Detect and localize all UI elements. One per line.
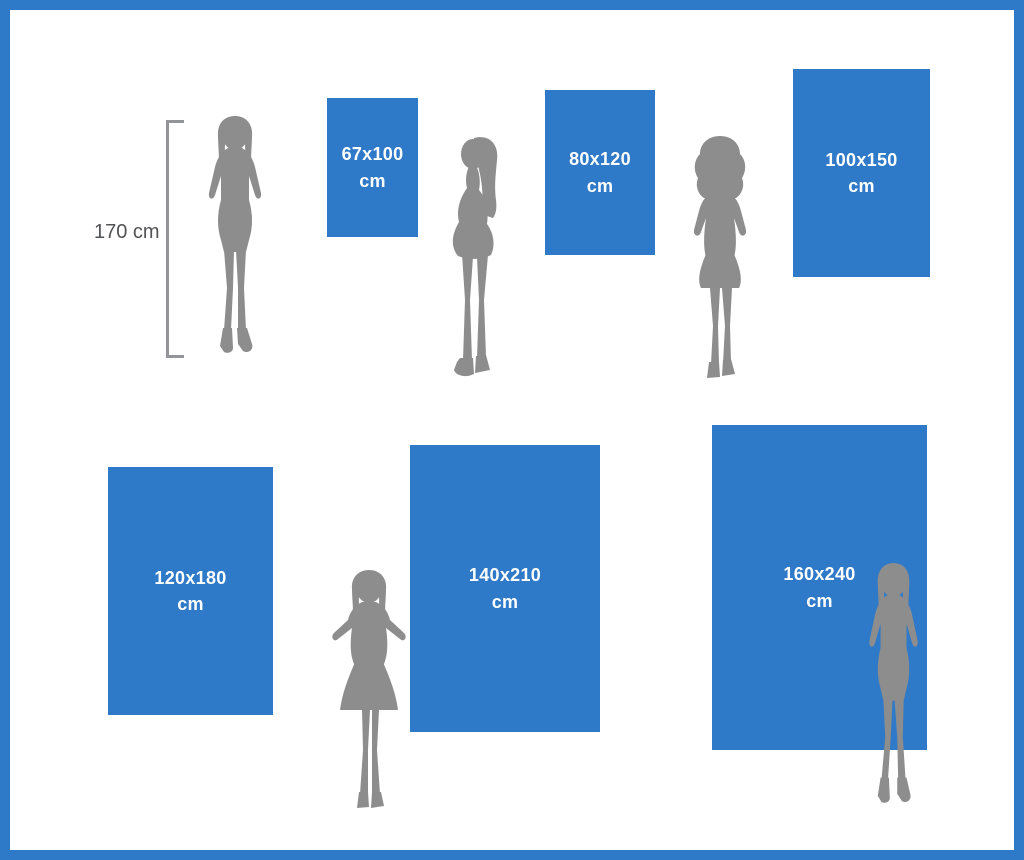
height-measure-bracket-icon [166,120,184,358]
size-comparison-diagram: 170 cm 67x100 cm 80x120 cm 100x150 cm 12… [0,0,1024,860]
size-box-140x210: 140x210 cm [410,445,600,732]
size-dimensions: 67x100 [342,141,404,167]
size-unit: cm [825,173,897,199]
size-box-100x150: 100x150 cm [793,69,930,277]
reference-height-label: 170 cm [94,221,164,244]
size-dimensions: 160x240 [783,561,855,587]
woman-standing-side-icon [446,136,518,381]
size-box-120x180: 120x180 cm [108,467,273,715]
size-unit: cm [569,173,631,199]
woman-curly-hair-front-icon [678,136,762,381]
size-dimensions: 120x180 [154,565,226,591]
size-dimensions: 100x150 [825,147,897,173]
size-unit: cm [469,589,541,615]
woman-hands-on-hips-icon [318,570,420,810]
size-dimensions: 80x120 [569,146,631,172]
size-box-80x120: 80x120 cm [545,90,655,255]
size-label: 140x210 cm [469,562,541,614]
size-dimensions: 140x210 [469,562,541,588]
size-label: 100x150 cm [825,147,897,199]
size-box-67x100: 67x100 cm [327,98,418,237]
size-label: 160x240 cm [783,561,855,613]
size-unit: cm [154,591,226,617]
size-label: 120x180 cm [154,565,226,617]
size-unit: cm [783,588,855,614]
size-label: 67x100 cm [342,141,404,193]
woman-standing-front-icon [188,116,283,356]
size-unit: cm [342,168,404,194]
woman-standing-front-icon [850,563,938,806]
size-label: 80x120 cm [569,146,631,198]
